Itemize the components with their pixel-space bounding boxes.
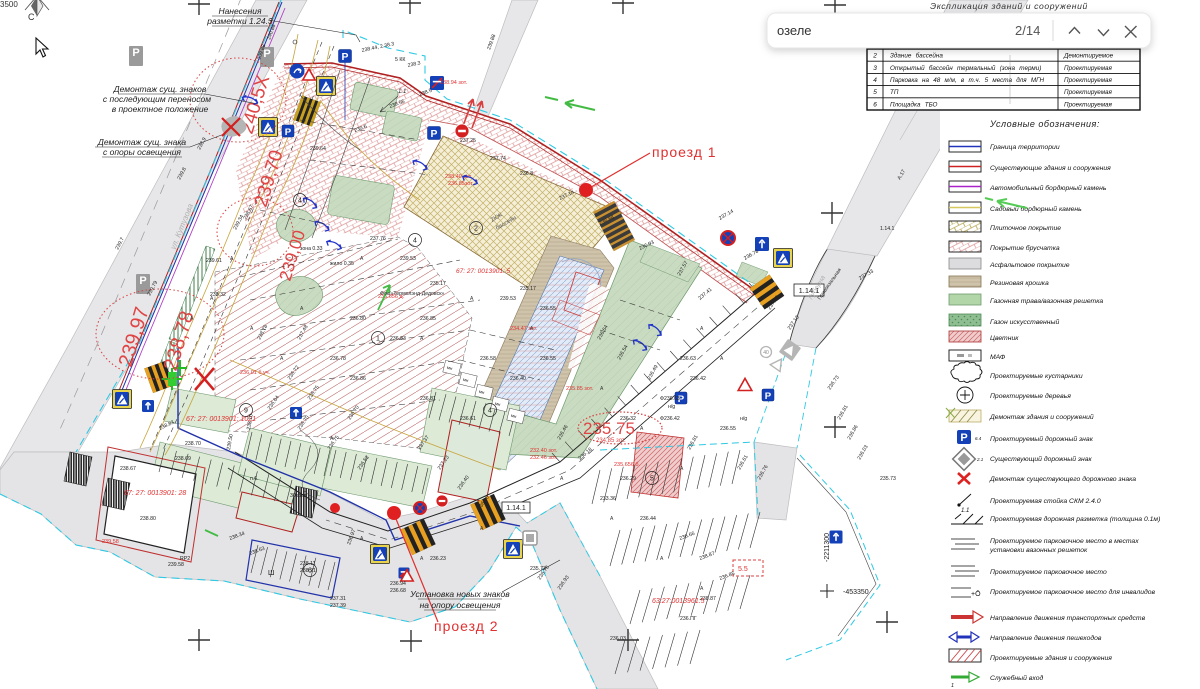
svg-text:3: 3 bbox=[873, 65, 877, 72]
svg-text:239.58: 239.58 bbox=[168, 562, 184, 568]
svg-text:в проектное положение: в проектное положение bbox=[112, 104, 209, 114]
svg-text:+Ō: +Ō bbox=[971, 590, 981, 598]
svg-text:1.14.1: 1.14.1 bbox=[880, 226, 895, 232]
svg-text:P: P bbox=[139, 275, 146, 287]
svg-text:236.85: 236.85 bbox=[420, 316, 436, 322]
svg-text:1.1: 1.1 bbox=[961, 508, 969, 514]
svg-text:238.70: 238.70 bbox=[185, 441, 201, 447]
svg-text:Установка новых знаков: Установка новых знаков bbox=[409, 589, 510, 599]
svg-text:5: 5 bbox=[873, 89, 877, 96]
svg-text:Существующие здания и сооружен: Существующие здания и сооружения bbox=[990, 164, 1111, 172]
svg-text:P: P bbox=[342, 52, 349, 63]
svg-text:зона 0.33: зона 0.33 bbox=[300, 246, 323, 252]
svg-text:Газонная трава/вазонная решетк: Газонная трава/вазонная решетка bbox=[990, 298, 1103, 305]
svg-text:236.8: 236.8 bbox=[520, 171, 533, 177]
svg-text:Здание бассейна: Здание бассейна bbox=[890, 52, 943, 60]
svg-text:с опоры освещения: с опоры освещения bbox=[103, 147, 181, 157]
svg-text:239.58: 239.58 bbox=[102, 539, 119, 545]
svg-text:проезд 1: проезд 1 bbox=[652, 144, 717, 160]
svg-text:238.69: 238.69 bbox=[175, 456, 191, 462]
svg-text:Проектируемые кустарники: Проектируемые кустарники bbox=[990, 373, 1083, 380]
svg-text:1.1: 1.1 bbox=[398, 89, 406, 95]
svg-text:Асфальтовое покрытие: Асфальтовое покрытие bbox=[989, 262, 1070, 269]
svg-text:Покрытие брусчатка: Покрытие брусчатка bbox=[990, 244, 1060, 252]
svg-text:P: P bbox=[132, 47, 139, 59]
svg-text:Направление движения пешеходов: Направление движения пешеходов bbox=[990, 634, 1102, 642]
svg-text:236.63: 236.63 bbox=[680, 356, 696, 362]
svg-text:236.78: 236.78 bbox=[330, 356, 346, 362]
svg-text:4: 4 bbox=[298, 198, 302, 205]
svg-text:4: 4 bbox=[873, 77, 877, 84]
svg-text:67: 27: 0013901: 28: 67: 27: 0013901: 28 bbox=[124, 490, 186, 497]
svg-text:2/14: 2/14 bbox=[1015, 23, 1040, 38]
svg-text:63:27:0013961:5: 63:27:0013961:5 bbox=[652, 598, 705, 605]
svg-text:236.94: 236.94 bbox=[390, 581, 406, 587]
svg-text:Нанесения: Нанесения bbox=[218, 6, 262, 16]
svg-text:установки вазонных решеток: установки вазонных решеток bbox=[989, 547, 1088, 554]
svg-text:236.32: 236.32 bbox=[620, 416, 636, 422]
svg-text:236.68: 236.68 bbox=[390, 588, 406, 594]
svg-text:236.83: 236.83 bbox=[390, 336, 406, 342]
svg-text:9: 9 bbox=[244, 408, 248, 415]
svg-text:С: С bbox=[28, 12, 35, 22]
svg-text:236.29: 236.29 bbox=[620, 476, 636, 482]
svg-text:Ф236.42: Ф236.42 bbox=[660, 416, 680, 422]
svg-text:236.55: 236.55 bbox=[540, 356, 556, 362]
svg-text:2: 2 bbox=[474, 226, 478, 233]
svg-text:239.61: 239.61 bbox=[206, 258, 222, 264]
svg-text:239.64: 239.64 bbox=[310, 146, 326, 152]
svg-text:235.17: 235.17 bbox=[430, 281, 446, 287]
svg-text:236.61: 236.61 bbox=[460, 416, 476, 422]
svg-text:2.1: 2.1 bbox=[976, 457, 984, 462]
svg-text:5.5: 5.5 bbox=[738, 566, 748, 573]
svg-text:на опору освещения: на опору освещения bbox=[420, 600, 501, 610]
svg-text:Проектируемая дорожная разметк: Проектируемая дорожная разметка (толщина… bbox=[990, 515, 1160, 523]
svg-text:Проектируемый дорожный знак: Проектируемый дорожный знак bbox=[990, 435, 1094, 443]
svg-text:4: 4 bbox=[413, 238, 417, 245]
svg-text:Газон искусственный: Газон искусственный bbox=[990, 318, 1059, 326]
svg-text:Служебный вход: Служебный вход bbox=[990, 674, 1043, 682]
svg-text:236.85зот.: 236.85зот. bbox=[448, 181, 474, 187]
svg-text:P: P bbox=[960, 432, 967, 444]
svg-text:237.25: 237.25 bbox=[460, 138, 476, 144]
svg-text:Фок/«Термолэнд-Дедовск»: Фок/«Термолэнд-Дедовск» bbox=[380, 291, 444, 297]
svg-text:235.85 зот.: 235.85 зот. bbox=[566, 386, 594, 392]
svg-text:Демонтаж здания и сооружений: Демонтаж здания и сооружений bbox=[989, 413, 1094, 421]
svg-text:239.53: 239.53 bbox=[400, 256, 416, 262]
svg-text:236.42: 236.42 bbox=[690, 376, 706, 382]
svg-text:6: 6 bbox=[873, 101, 877, 108]
svg-text:237.74: 237.74 bbox=[490, 156, 506, 162]
svg-text:п.6.: п.6. bbox=[250, 476, 259, 482]
svg-text:Цветник: Цветник bbox=[990, 335, 1019, 342]
svg-text:с последующим переносом: с последующим переносом bbox=[103, 94, 211, 104]
svg-text:67: 27: 0013901: 5: 67: 27: 0013901: 5 bbox=[456, 268, 511, 275]
svg-text:235.73: 235.73 bbox=[880, 476, 896, 482]
svg-text:Проектируемая: Проектируемая bbox=[1064, 89, 1113, 96]
svg-text:237.76: 237.76 bbox=[370, 236, 386, 242]
svg-text:236.23: 236.23 bbox=[430, 556, 446, 562]
svg-text:Проектируемые деревья: Проектируемые деревья bbox=[990, 392, 1071, 400]
svg-text:Проектируемая стойка СКМ 2.4.0: Проектируемая стойка СКМ 2.4.0 bbox=[990, 497, 1101, 505]
svg-text:236.58: 236.58 bbox=[480, 356, 496, 362]
svg-text:235.656 б.: 235.656 б. bbox=[614, 462, 641, 468]
svg-text:236.44: 236.44 bbox=[640, 516, 656, 522]
svg-text:238.80: 238.80 bbox=[140, 516, 156, 522]
svg-text:P: P bbox=[431, 129, 438, 140]
svg-text:234.85 зот.: 234.85 зот. bbox=[596, 438, 626, 444]
svg-text:30крат: 30крат bbox=[290, 493, 307, 499]
svg-text:4: 4 bbox=[488, 408, 492, 415]
svg-text:236.40: 236.40 bbox=[510, 376, 526, 382]
svg-text:236.55: 236.55 bbox=[540, 306, 556, 312]
svg-text:238.87: 238.87 bbox=[700, 596, 716, 602]
svg-text:разметки 1.24.3: разметки 1.24.3 bbox=[206, 16, 273, 26]
svg-text:236.86: 236.86 bbox=[350, 376, 366, 382]
svg-text:Демонтируемое: Демонтируемое bbox=[1063, 53, 1114, 60]
svg-text:236.ПГ: 236.ПГ bbox=[680, 616, 697, 622]
svg-text:Проектируемая: Проектируемая bbox=[1064, 101, 1113, 108]
svg-text:3500: 3500 bbox=[0, 0, 18, 9]
svg-text:5 КК: 5 КК bbox=[395, 57, 405, 63]
svg-text:Направление движения транспорт: Направление движения транспортных средст… bbox=[990, 614, 1146, 622]
svg-text:Экспликация зданий и сооруж: Экспликация зданий и сооружений bbox=[930, 1, 1088, 11]
svg-text:н/g: н/g bbox=[740, 416, 747, 422]
svg-text:-453350: -453350 bbox=[843, 589, 869, 596]
svg-text:P: P bbox=[285, 127, 292, 138]
svg-text:67: 27: 0013901: 1021: 67: 27: 0013901: 1021 bbox=[186, 416, 256, 423]
svg-text:Автомобильный бордюрный камень: Автомобильный бордюрный камень bbox=[989, 184, 1107, 192]
svg-text:235.17: 235.17 bbox=[520, 286, 536, 292]
svg-text:Площадка ТБО: Площадка ТБО bbox=[890, 100, 938, 108]
svg-text:236.81: 236.81 bbox=[420, 396, 436, 402]
svg-text:238.67: 238.67 bbox=[120, 466, 136, 472]
svg-text:1: 1 bbox=[951, 683, 954, 689]
svg-text:-2211300: -2211300 bbox=[824, 533, 831, 562]
svg-text:Проектируемая: Проектируемая bbox=[1064, 65, 1113, 72]
svg-text:Существующий дорожный знак: Существующий дорожный знак bbox=[990, 455, 1093, 463]
svg-text:Демонтаж существующего дорожно: Демонтаж существующего дорожново знака bbox=[989, 475, 1136, 483]
svg-text:234.47 зот.: 234.47 зот. bbox=[510, 326, 538, 332]
svg-text:Проектируемые здания и сооруже: Проектируемые здания и сооружения bbox=[990, 654, 1112, 662]
svg-text:236.55: 236.55 bbox=[720, 426, 736, 432]
svg-text:н/g: н/g bbox=[668, 404, 675, 410]
svg-text:Демонтаж сущ. знаков: Демонтаж сущ. знаков bbox=[113, 84, 207, 94]
svg-text:232.40 зот.: 232.40 зот. bbox=[530, 448, 558, 454]
svg-text:Условные обозначения:: Условные обозначения: bbox=[989, 119, 1100, 129]
svg-text:Открытый бассейн термальный (з: Открытый бассейн термальный (зона терми) bbox=[890, 64, 1041, 72]
svg-text:проезд 2: проезд 2 bbox=[434, 618, 499, 634]
svg-text:Демонтаж сущ. знака: Демонтаж сущ. знака bbox=[97, 137, 187, 147]
svg-text:232.46 зот.: 232.46 зот. bbox=[530, 455, 558, 461]
svg-text:236.01 б.уч.: 236.01 б.уч. bbox=[240, 370, 271, 376]
svg-text:озеле: озеле bbox=[777, 23, 812, 38]
svg-text:Резиновая крошка: Резиновая крошка bbox=[990, 280, 1049, 287]
svg-text:Проектируемое парковочное мест: Проектируемое парковочное место в местах bbox=[990, 538, 1139, 545]
svg-text:6: 6 bbox=[308, 568, 312, 575]
svg-text:236.80: 236.80 bbox=[350, 316, 366, 322]
svg-text:238.94 зот.: 238.94 зот. bbox=[440, 80, 468, 86]
svg-text:2: 2 bbox=[872, 53, 877, 60]
svg-text:Проектируемое парковочное мест: Проектируемое парковочное место bbox=[990, 569, 1107, 576]
svg-text:1.14.1: 1.14.1 bbox=[506, 505, 526, 512]
svg-text:239.53: 239.53 bbox=[500, 296, 516, 302]
svg-text:Ф236.63: Ф236.63 bbox=[660, 396, 680, 402]
svg-text:жило 0.35: жило 0.35 bbox=[330, 261, 354, 267]
svg-text:1: 1 bbox=[376, 336, 380, 343]
svg-text:5: 5 bbox=[650, 476, 654, 483]
svg-text:237.31: 237.31 bbox=[330, 596, 346, 602]
svg-text:6.4: 6.4 bbox=[975, 436, 982, 441]
svg-text:40: 40 bbox=[763, 350, 769, 356]
svg-text:P: P bbox=[765, 391, 772, 402]
svg-text:237.39: 237.39 bbox=[330, 603, 346, 609]
svg-text:ТП: ТП bbox=[890, 89, 899, 96]
svg-text:Парковка на 48 м/м, в т.ч. 5 м: Парковка на 48 м/м, в т.ч. 5 места для М… bbox=[890, 76, 1045, 84]
svg-text:МАФ: МАФ bbox=[990, 354, 1006, 361]
svg-text:Проектируемая: Проектируемая bbox=[1064, 77, 1113, 84]
svg-text:Проектируемое парковочное мест: Проектируемое парковочное место для инва… bbox=[990, 588, 1156, 596]
svg-text:236.03: 236.03 bbox=[610, 636, 626, 642]
svg-text:Граница территории: Граница территории bbox=[990, 144, 1060, 151]
svg-text:233.36: 233.36 bbox=[600, 496, 616, 502]
svg-text:Плиточное покрытие: Плиточное покрытие bbox=[990, 225, 1061, 232]
